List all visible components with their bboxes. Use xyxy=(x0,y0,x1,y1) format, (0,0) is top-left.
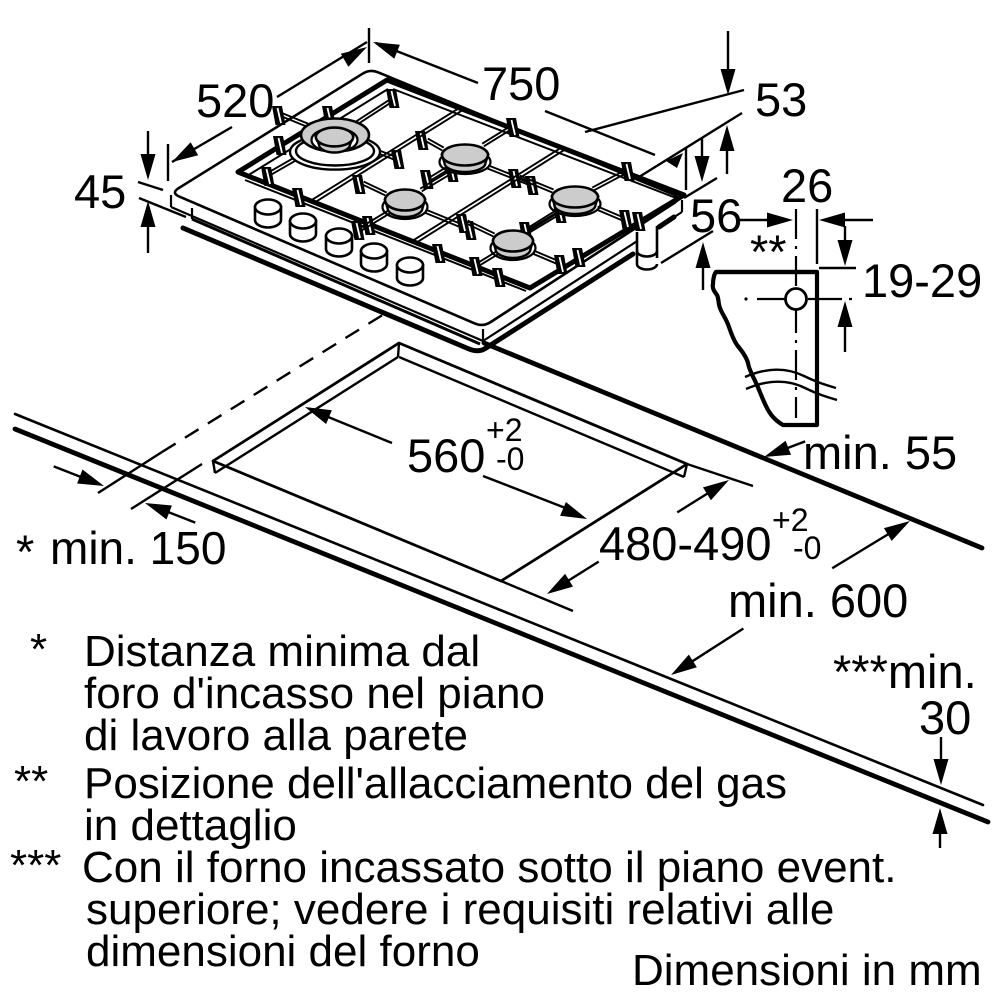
svg-text:26: 26 xyxy=(781,159,833,212)
svg-text:di lavoro alla parete: di lavoro alla parete xyxy=(84,711,468,760)
svg-text:*: * xyxy=(30,625,47,674)
svg-text:dimensioni del forno: dimensioni del forno xyxy=(86,927,480,976)
svg-text:-0: -0 xyxy=(793,530,821,566)
svg-text:Dimensioni in mm: Dimensioni in mm xyxy=(632,946,982,995)
svg-text:*: * xyxy=(16,525,34,578)
svg-text:480-490: 480-490 xyxy=(599,517,772,570)
svg-text:560: 560 xyxy=(407,429,485,482)
svg-text:56: 56 xyxy=(690,189,742,242)
svg-text:***: *** xyxy=(10,841,61,890)
svg-text:min. 600: min. 600 xyxy=(728,574,908,627)
svg-text:30: 30 xyxy=(919,691,971,744)
svg-text:**: ** xyxy=(14,757,48,806)
svg-text:45: 45 xyxy=(74,165,126,218)
svg-text:53: 53 xyxy=(755,73,807,126)
svg-text:**: ** xyxy=(750,225,787,278)
svg-text:min. 150: min. 150 xyxy=(50,522,226,574)
svg-text:520: 520 xyxy=(196,74,274,127)
svg-text:-0: -0 xyxy=(496,441,524,477)
svg-text:min. 55: min. 55 xyxy=(803,426,957,479)
svg-text:750: 750 xyxy=(482,57,560,110)
svg-text:19-29: 19-29 xyxy=(862,254,982,307)
